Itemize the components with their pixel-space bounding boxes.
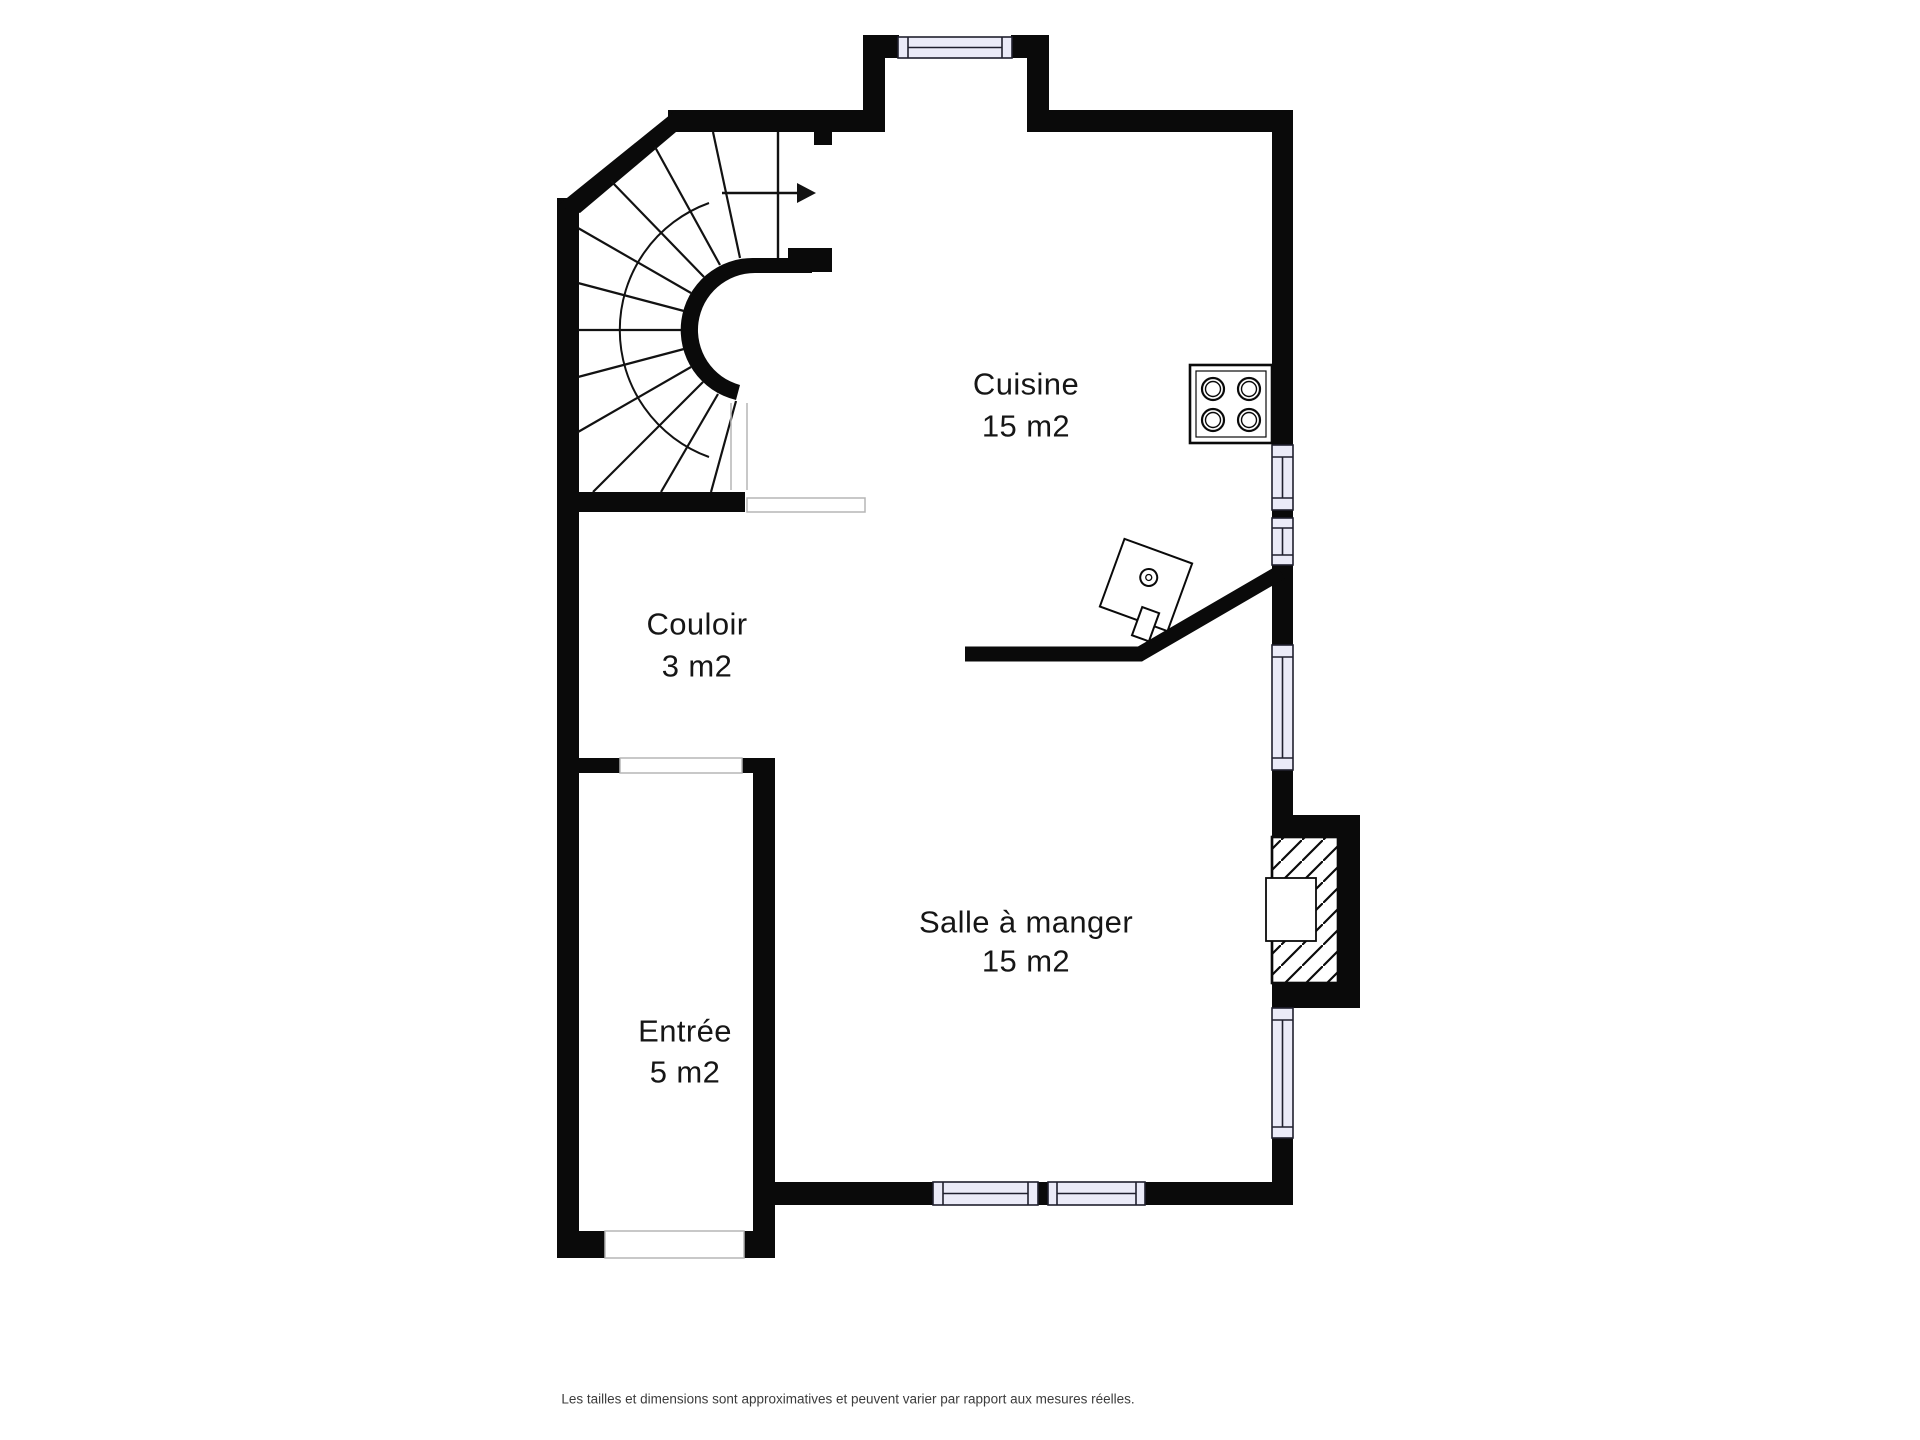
wall — [1272, 510, 1293, 518]
stove-icon — [1190, 365, 1272, 443]
stair-tread — [578, 367, 691, 432]
stair-tread — [578, 228, 691, 293]
footer-disclaimer: Les tailles et dimensions sont approxima… — [561, 1392, 1134, 1407]
stair-tread — [655, 147, 720, 265]
wall — [579, 758, 620, 773]
window-bottom-1 — [933, 1182, 1038, 1205]
wall — [863, 35, 885, 132]
wall — [1027, 35, 1049, 132]
wall — [742, 758, 775, 773]
opening-couloir-entree — [620, 758, 742, 773]
stair-tread — [611, 181, 704, 277]
stair-tread — [578, 349, 684, 377]
stair-tread — [661, 394, 718, 492]
room-label-couloir: Couloir — [646, 607, 747, 642]
windows — [898, 37, 1293, 1205]
window-right-1 — [1272, 445, 1293, 510]
stair-tread — [713, 132, 740, 258]
room-area-cuisine: 15 m2 — [982, 409, 1070, 444]
wall — [668, 110, 863, 132]
floor-plan-page: Cuisine 15 m2 Couloir 3 m2 Entrée 5 m2 S… — [0, 0, 1920, 1440]
door-openings — [605, 403, 865, 1258]
room-label-cuisine: Cuisine — [973, 367, 1079, 402]
stair-tread — [593, 382, 703, 492]
room-area-salle-a-manger: 15 m2 — [982, 944, 1070, 979]
stair-tread — [578, 283, 684, 311]
opening-front-door — [605, 1231, 744, 1258]
wall — [557, 492, 745, 512]
room-area-couloir: 3 m2 — [662, 649, 733, 684]
room-area-entree: 5 m2 — [650, 1055, 721, 1090]
fireplace-notch — [1266, 878, 1316, 941]
wall — [883, 35, 899, 58]
window-bottom-2 — [1048, 1182, 1145, 1205]
window-top — [898, 37, 1012, 58]
wall — [814, 132, 832, 145]
room-label-entree: Entrée — [638, 1014, 732, 1049]
wall — [753, 758, 775, 1258]
wall — [744, 1231, 775, 1258]
wall — [557, 1231, 605, 1258]
wall — [1272, 130, 1293, 445]
wall — [1272, 770, 1293, 815]
door-leaf-stair — [747, 498, 865, 512]
room-labels: Cuisine 15 m2 Couloir 3 m2 Entrée 5 m2 S… — [638, 367, 1133, 1090]
wall — [557, 198, 579, 1258]
window-right-2 — [1272, 518, 1293, 565]
wall — [1049, 110, 1293, 132]
fireplace-chimney-icon — [1266, 837, 1338, 983]
stair-curved-wall — [681, 258, 812, 400]
wall-diagonal — [557, 110, 676, 213]
floor-plan: Cuisine 15 m2 Couloir 3 m2 Entrée 5 m2 S… — [0, 0, 1920, 1440]
stair-arrow-head-icon — [797, 183, 816, 203]
room-label-salle-a-manger: Salle à manger — [919, 905, 1133, 940]
stair-tread — [711, 401, 736, 492]
window-right-4 — [1272, 1008, 1293, 1138]
window-right-3 — [1272, 645, 1293, 770]
